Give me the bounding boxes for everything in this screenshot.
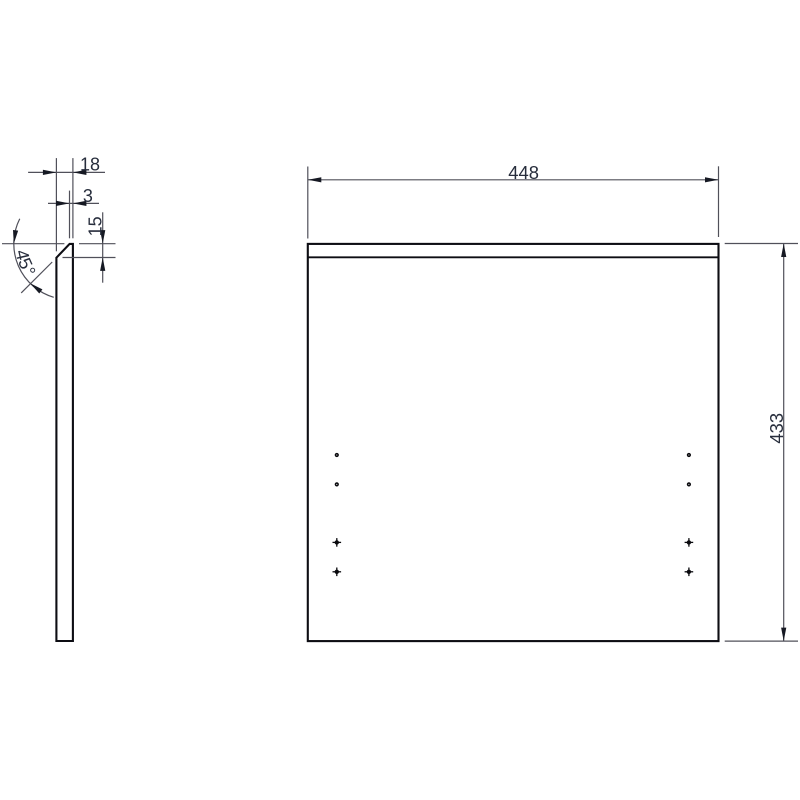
svg-text:433: 433 <box>766 413 787 444</box>
svg-text:15: 15 <box>86 216 106 236</box>
svg-text:3: 3 <box>83 186 93 206</box>
svg-text:18: 18 <box>80 155 100 175</box>
svg-text:448: 448 <box>508 162 539 183</box>
